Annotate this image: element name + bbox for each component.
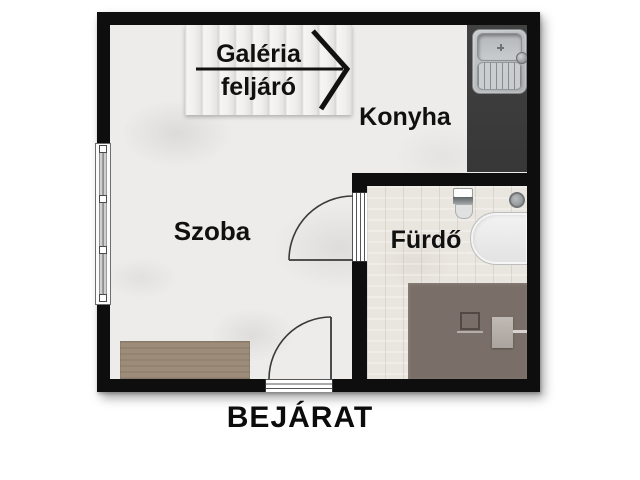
entrance-door-swing [269, 317, 331, 379]
entrance-label: BEJÁRAT [190, 401, 410, 435]
gallery-label-line2: feljáró [175, 74, 342, 100]
bathroom-label: Fürdő [376, 227, 476, 253]
doors-and-arrow-overlay [97, 12, 540, 392]
floor-plan-canvas: Galéria feljáró Konyha Szoba Fürdő BEJÁR… [0, 0, 640, 480]
kitchen-label: Konyha [355, 104, 455, 130]
floor-plan: Galéria feljáró Konyha Szoba Fürdő [97, 12, 540, 392]
bathroom-door-swing [289, 196, 353, 260]
room-label: Szoba [152, 218, 272, 245]
gallery-label-line1: Galéria [175, 41, 342, 67]
